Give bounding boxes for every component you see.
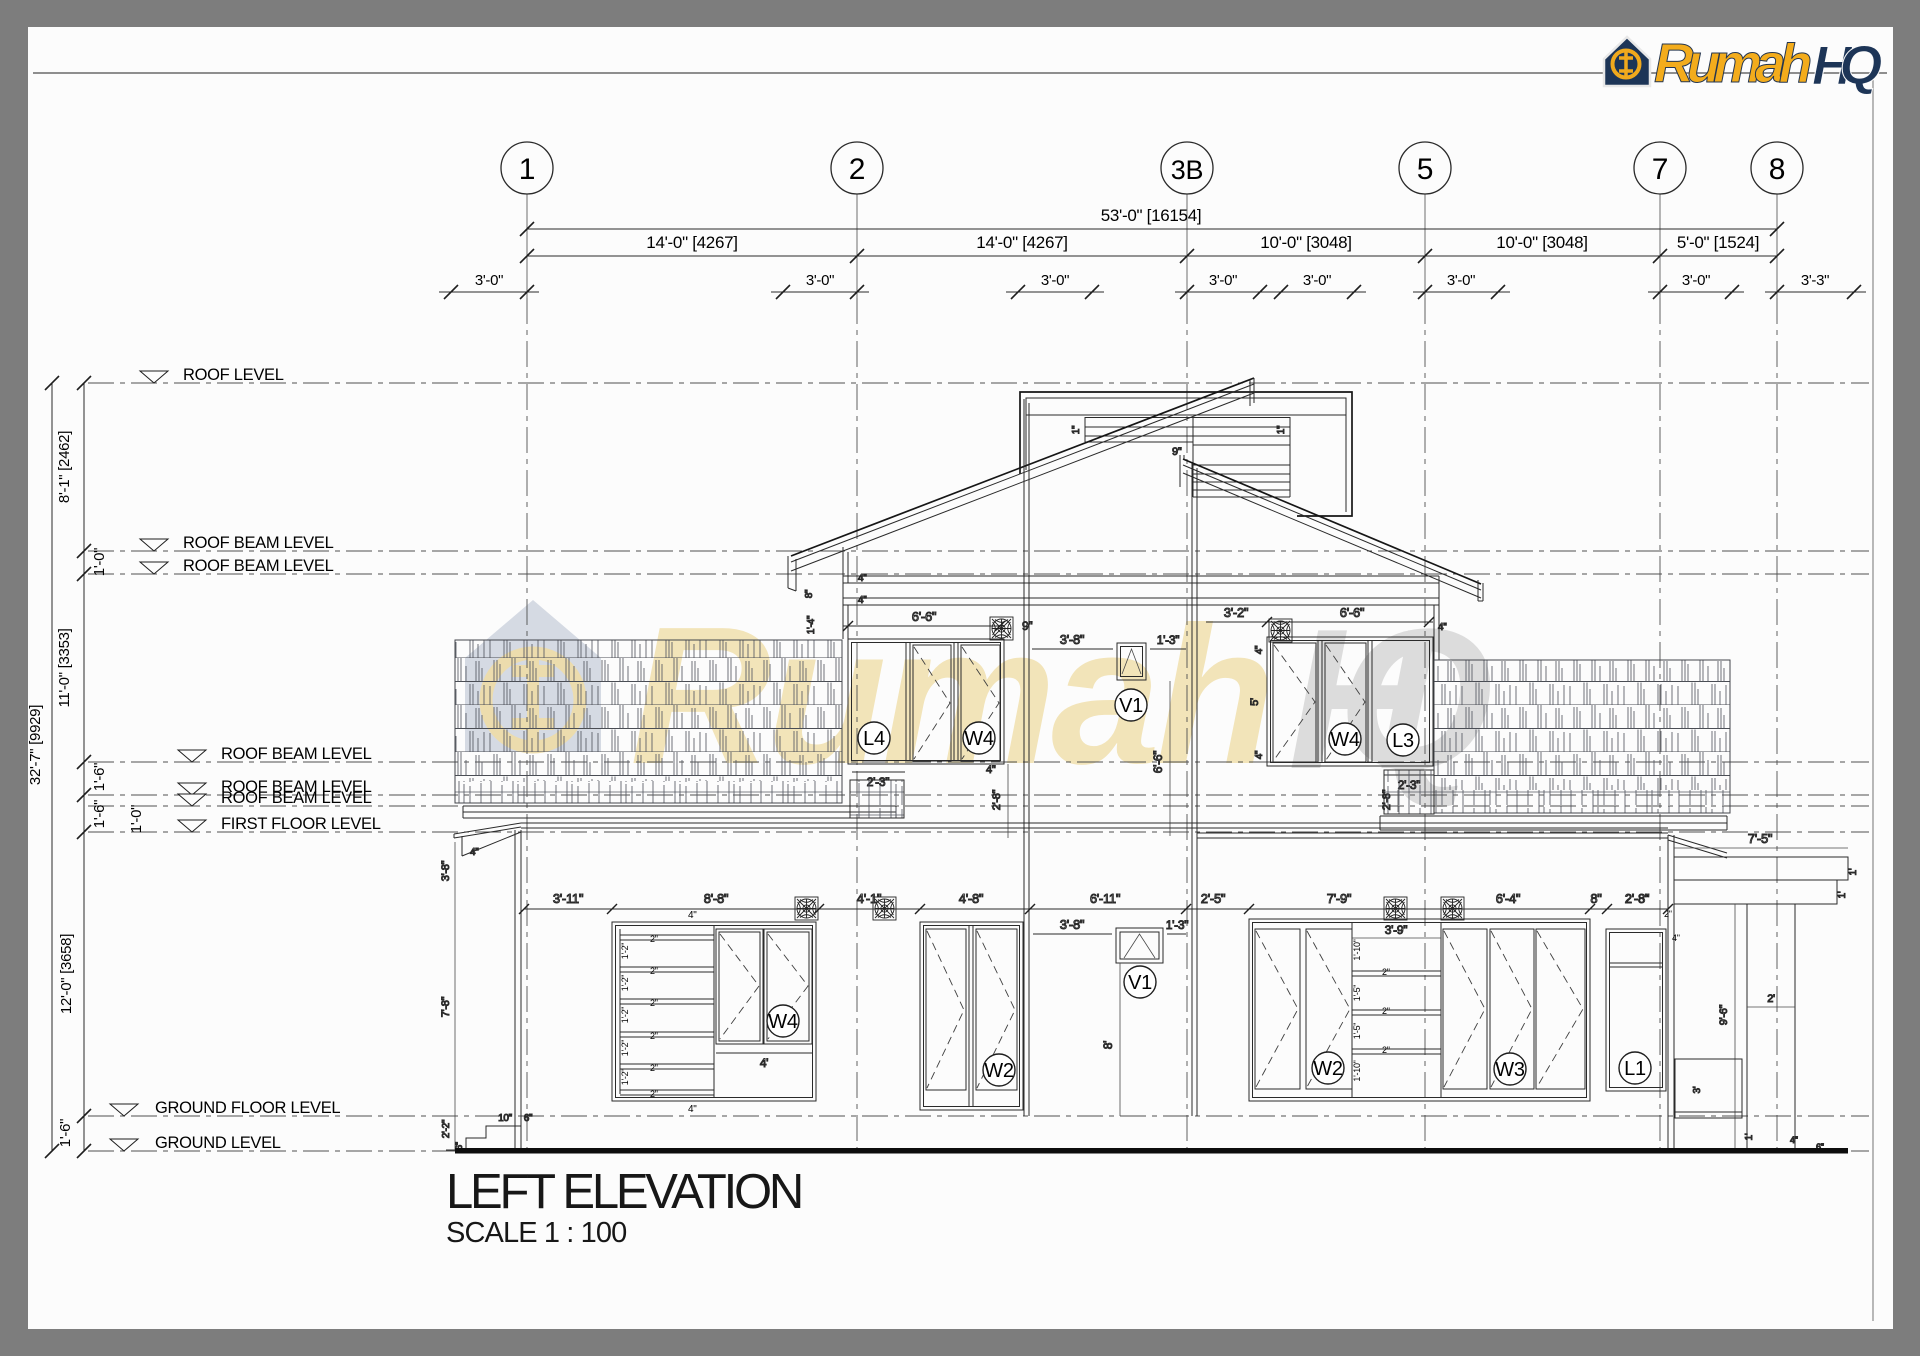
svg-text:2": 2" <box>650 1031 658 1041</box>
svg-text:GROUND LEVEL: GROUND LEVEL <box>155 1134 281 1152</box>
svg-text:3'-0": 3'-0" <box>1303 272 1331 289</box>
svg-text:ROOF BEAM LEVEL: ROOF BEAM LEVEL <box>183 534 334 552</box>
svg-text:1'-3": 1'-3" <box>1157 633 1179 647</box>
svg-text:3'-2": 3'-2" <box>1224 605 1249 620</box>
svg-text:GROUND FLOOR LEVEL: GROUND FLOOR LEVEL <box>155 1099 340 1117</box>
svg-text:6'-6": 6'-6" <box>912 609 937 624</box>
svg-text:6'-11": 6'-11" <box>1090 891 1121 906</box>
svg-text:SCALE 1 : 100: SCALE 1 : 100 <box>446 1217 627 1249</box>
svg-text:14'-0" [4267]: 14'-0" [4267] <box>646 233 737 252</box>
svg-text:1'-10": 1'-10" <box>1352 1060 1362 1081</box>
svg-text:5'-0" [1524]: 5'-0" [1524] <box>1677 233 1759 252</box>
svg-text:10'-0" [3048]: 10'-0" [3048] <box>1260 233 1351 252</box>
svg-text:4": 4" <box>688 1104 697 1115</box>
svg-text:8'-8": 8'-8" <box>704 891 729 906</box>
svg-text:2": 2" <box>650 1089 658 1099</box>
svg-text:1'-6": 1'-6" <box>91 800 108 828</box>
svg-text:4": 4" <box>1254 750 1265 759</box>
svg-text:4": 4" <box>470 847 479 858</box>
svg-text:2": 2" <box>1382 1045 1390 1055</box>
svg-text:LEFT ELEVATION: LEFT ELEVATION <box>446 1165 804 1219</box>
svg-text:1'-10": 1'-10" <box>1352 939 1362 960</box>
svg-text:1'-2": 1'-2" <box>620 943 630 960</box>
svg-text:1'-2": 1'-2" <box>620 1040 630 1057</box>
svg-text:W2: W2 <box>984 1060 1014 1082</box>
svg-text:V1: V1 <box>1119 695 1143 717</box>
svg-text:2": 2" <box>650 998 658 1008</box>
svg-text:2": 2" <box>1382 1006 1390 1016</box>
svg-text:W4: W4 <box>768 1011 798 1033</box>
svg-text:HQ: HQ <box>1812 34 1882 96</box>
svg-text:Rumah: Rumah <box>1654 32 1812 94</box>
svg-text:1'-2": 1'-2" <box>620 975 630 992</box>
svg-text:8: 8 <box>1769 153 1785 186</box>
svg-text:8': 8' <box>1101 1041 1115 1049</box>
svg-text:4'-8": 4'-8" <box>959 891 984 906</box>
svg-text:1'-5": 1'-5" <box>1352 985 1362 1002</box>
svg-text:7: 7 <box>1652 153 1668 186</box>
svg-text:1'-5": 1'-5" <box>1352 1023 1362 1040</box>
svg-text:32'-7" [9929]: 32'-7" [9929] <box>27 705 44 785</box>
svg-text:6'-6": 6'-6" <box>1151 751 1165 773</box>
svg-text:9": 9" <box>1022 619 1032 633</box>
svg-text:2": 2" <box>1664 909 1672 919</box>
svg-text:4": 4" <box>688 910 697 921</box>
svg-text:1'-0": 1'-0" <box>91 548 108 576</box>
svg-text:4': 4' <box>760 1056 768 1070</box>
svg-text:3'-0": 3'-0" <box>806 272 834 289</box>
svg-text:53'-0" [16154]: 53'-0" [16154] <box>1101 206 1202 225</box>
svg-text:1': 1' <box>1744 1133 1755 1140</box>
svg-text:6'-4": 6'-4" <box>1496 891 1521 906</box>
svg-text:3': 3' <box>1692 1086 1703 1093</box>
svg-text:7'-8": 7'-8" <box>440 996 452 1017</box>
svg-text:11'-0" [3353]: 11'-0" [3353] <box>56 628 73 707</box>
svg-text:1": 1" <box>1276 425 1287 434</box>
svg-text:2": 2" <box>650 934 658 944</box>
svg-text:1'-2": 1'-2" <box>620 1007 630 1024</box>
svg-text:3'-11": 3'-11" <box>553 891 584 906</box>
svg-text:3'-0": 3'-0" <box>1209 272 1237 289</box>
svg-text:4": 4" <box>1254 645 1265 654</box>
svg-text:4": 4" <box>1790 1135 1798 1145</box>
svg-text:3'-8": 3'-8" <box>440 860 452 881</box>
svg-text:2": 2" <box>650 966 658 976</box>
svg-text:V1: V1 <box>1128 972 1152 994</box>
svg-text:2: 2 <box>849 153 865 186</box>
svg-text:L4: L4 <box>863 728 885 750</box>
svg-text:8'-1" [2462]: 8'-1" [2462] <box>56 431 73 503</box>
svg-text:4'-1": 4'-1" <box>857 891 882 906</box>
svg-text:5': 5' <box>1249 698 1261 706</box>
svg-text:4": 4" <box>858 573 867 584</box>
svg-text:ROOF BEAM LEVEL: ROOF BEAM LEVEL <box>221 789 372 807</box>
svg-text:10'-0" [3048]: 10'-0" [3048] <box>1496 233 1587 252</box>
svg-text:8": 8" <box>1590 891 1602 906</box>
svg-text:9'-6": 9'-6" <box>1718 1004 1730 1025</box>
svg-text:1': 1' <box>1837 891 1848 898</box>
svg-text:1'-6": 1'-6" <box>91 763 108 791</box>
svg-text:W4: W4 <box>964 728 994 750</box>
svg-text:L3: L3 <box>1392 730 1414 752</box>
svg-text:7'-9": 7'-9" <box>1327 891 1352 906</box>
svg-text:2'-2": 2'-2" <box>441 1119 452 1138</box>
svg-text:1'-6": 1'-6" <box>57 1119 74 1147</box>
svg-text:6'-6": 6'-6" <box>1340 605 1365 620</box>
svg-text:4": 4" <box>1438 622 1447 633</box>
svg-text:1": 1" <box>1071 425 1082 434</box>
svg-text:4": 4" <box>858 595 867 606</box>
svg-text:W2: W2 <box>1313 1058 1343 1080</box>
svg-text:ROOF BEAM LEVEL: ROOF BEAM LEVEL <box>183 557 334 575</box>
svg-text:ROOF LEVEL: ROOF LEVEL <box>183 366 284 384</box>
svg-text:2': 2' <box>1767 993 1775 1005</box>
svg-text:2'-8": 2'-8" <box>1625 891 1650 906</box>
svg-text:2'-8": 2'-8" <box>991 789 1003 810</box>
svg-text:W3: W3 <box>1495 1059 1525 1081</box>
svg-text:3'-0": 3'-0" <box>1682 272 1710 289</box>
svg-text:3'-9": 3'-9" <box>1385 923 1407 937</box>
svg-text:6": 6" <box>524 1113 533 1124</box>
svg-text:8": 8" <box>804 589 815 598</box>
svg-text:3'-8": 3'-8" <box>1060 917 1085 932</box>
svg-text:3'-0": 3'-0" <box>1447 272 1475 289</box>
svg-text:FIRST FLOOR LEVEL: FIRST FLOOR LEVEL <box>221 815 381 833</box>
svg-text:3'-0": 3'-0" <box>475 272 503 289</box>
svg-text:2'-5": 2'-5" <box>1201 891 1226 906</box>
svg-text:W4: W4 <box>1330 729 1360 751</box>
svg-text:14'-0" [4267]: 14'-0" [4267] <box>976 233 1067 252</box>
svg-text:2": 2" <box>1382 967 1390 977</box>
svg-text:12'-0" [3658]: 12'-0" [3658] <box>58 934 75 1014</box>
svg-text:1'-3": 1'-3" <box>1166 918 1188 932</box>
svg-text:10": 10" <box>498 1113 513 1124</box>
svg-text:1'-0": 1'-0" <box>128 805 145 833</box>
svg-text:5: 5 <box>1417 153 1433 186</box>
svg-text:1': 1' <box>1848 868 1859 875</box>
svg-text:1'-2": 1'-2" <box>620 1069 630 1086</box>
svg-text:3B: 3B <box>1171 155 1203 185</box>
svg-text:4": 4" <box>1672 933 1680 943</box>
svg-text:1'-4": 1'-4" <box>806 615 817 634</box>
svg-text:2": 2" <box>650 1063 658 1073</box>
svg-text:L1: L1 <box>1624 1058 1646 1080</box>
svg-text:7'-5": 7'-5" <box>1748 831 1773 846</box>
svg-text:4": 4" <box>986 764 996 776</box>
svg-text:1: 1 <box>519 153 535 186</box>
svg-text:ROOF BEAM LEVEL: ROOF BEAM LEVEL <box>221 745 372 763</box>
svg-text:3'-0": 3'-0" <box>1041 272 1069 289</box>
svg-text:3'-3": 3'-3" <box>1801 272 1829 289</box>
svg-text:3'-8": 3'-8" <box>1060 632 1085 647</box>
